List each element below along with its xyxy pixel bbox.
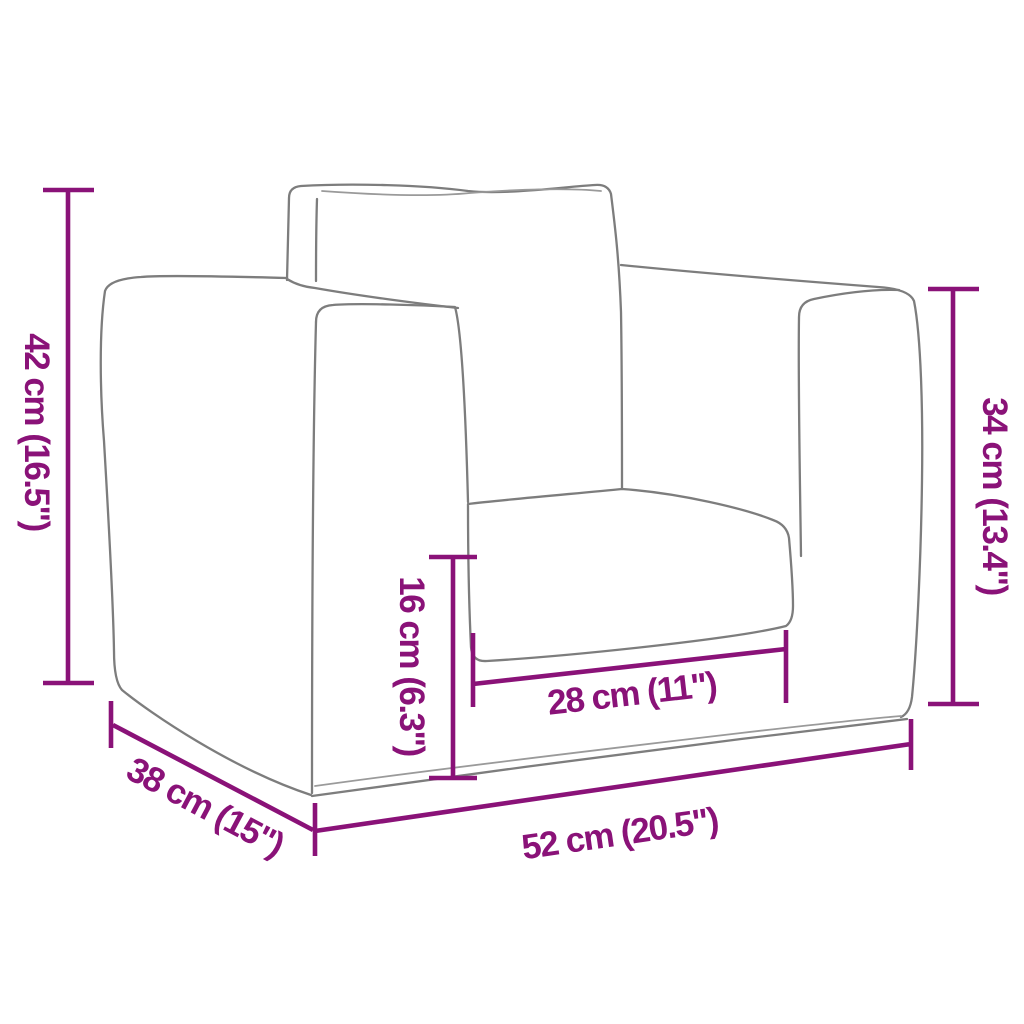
- dimension-diagram: 42 cm (16.5") 34 cm (13.4") 16 cm (6.3")…: [0, 0, 1024, 1024]
- left-arm-outer: [101, 276, 311, 795]
- dimension-label: 16 cm (6.3"): [392, 576, 431, 756]
- left-arm-front-edge: [312, 322, 316, 793]
- diagram-canvas: 42 cm (16.5") 34 cm (13.4") 16 cm (6.3")…: [0, 0, 1024, 1024]
- sofa-line-drawing: [101, 185, 922, 796]
- dimension-seat-height: 16 cm (6.3"): [392, 557, 477, 778]
- dimension-label: 52 cm (20.5"): [519, 800, 720, 867]
- right-arm-inner-edge: [799, 290, 899, 556]
- left-arm-inner-edge: [316, 304, 468, 502]
- dimension-seat-width: 28 cm (11"): [473, 630, 786, 723]
- dimension-depth: 38 cm (15"): [111, 701, 313, 864]
- backrest-front-left-seam: [316, 199, 317, 281]
- seat-cushion: [468, 489, 793, 661]
- backrest-outline: [287, 185, 622, 488]
- dimension-label: 34 cm (13.4"): [975, 397, 1014, 595]
- dimension-line: [928, 289, 979, 704]
- dimension-arm-height: 34 cm (13.4"): [928, 289, 1014, 704]
- dimension-overall-height: 42 cm (16.5"): [17, 190, 94, 683]
- dimension-label: 42 cm (16.5"): [17, 333, 56, 531]
